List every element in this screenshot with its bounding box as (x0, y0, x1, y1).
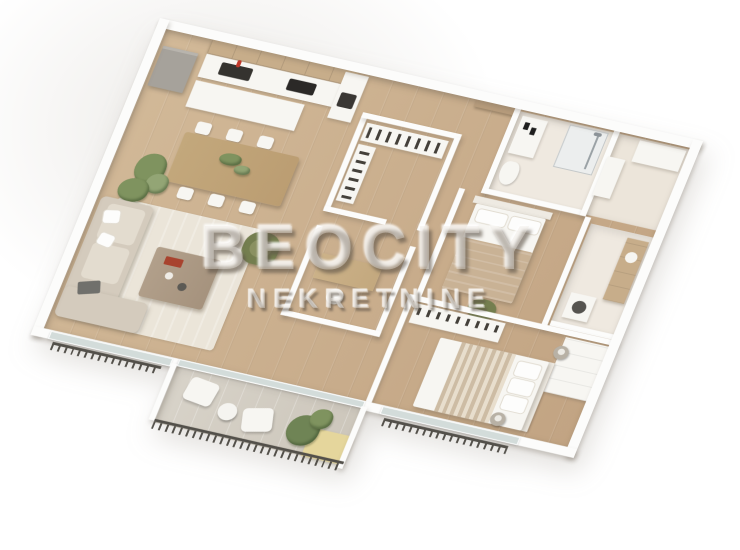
sofa-pillow (101, 209, 122, 224)
laptop (77, 280, 100, 294)
floorplan-scene: BEOCITY NEKRETNINE (0, 0, 740, 550)
terrace-lounge-chair (240, 408, 274, 432)
